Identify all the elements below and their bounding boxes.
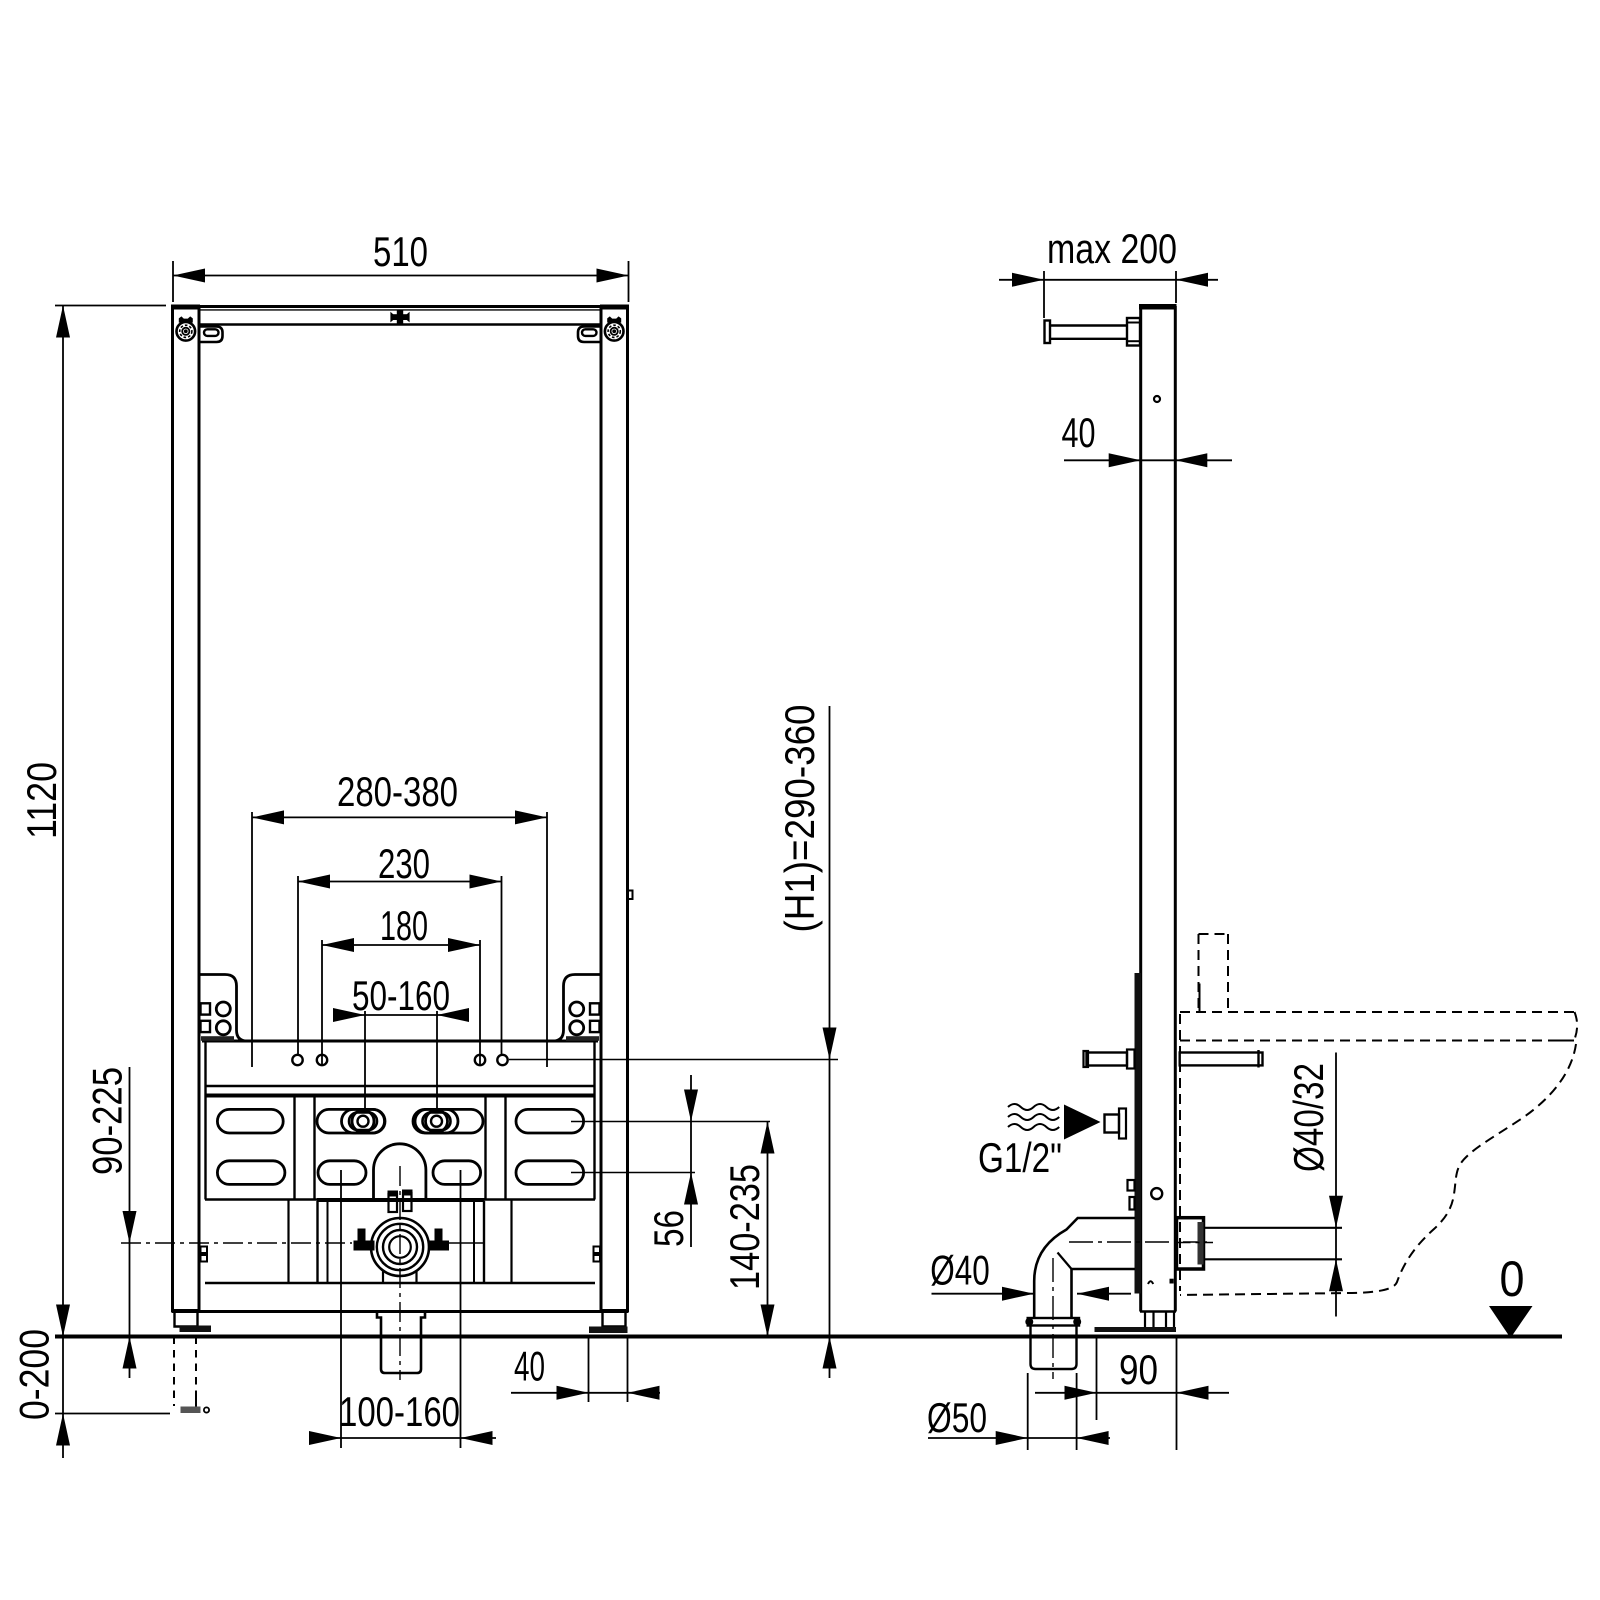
svg-text:1120: 1120 bbox=[18, 762, 65, 839]
svg-text:90: 90 bbox=[1119, 1346, 1158, 1393]
svg-text:max 200: max 200 bbox=[1047, 225, 1177, 272]
svg-text:Ø40: Ø40 bbox=[930, 1247, 990, 1294]
svg-text:140-235: 140-235 bbox=[721, 1164, 768, 1290]
svg-text:180: 180 bbox=[380, 902, 428, 949]
svg-text:(H1)=290-360: (H1)=290-360 bbox=[776, 705, 823, 933]
svg-text:100-160: 100-160 bbox=[339, 1388, 460, 1435]
svg-text:40: 40 bbox=[1062, 409, 1096, 456]
svg-text:Ø50: Ø50 bbox=[927, 1394, 987, 1441]
svg-text:230: 230 bbox=[378, 840, 430, 887]
svg-text:G1/2": G1/2" bbox=[978, 1134, 1062, 1181]
svg-text:40: 40 bbox=[514, 1343, 545, 1390]
svg-text:510: 510 bbox=[373, 228, 428, 275]
svg-text:0: 0 bbox=[1500, 1251, 1525, 1307]
svg-text:280-380: 280-380 bbox=[337, 768, 458, 815]
svg-text:90-225: 90-225 bbox=[84, 1067, 131, 1175]
svg-text:50-160: 50-160 bbox=[352, 972, 450, 1019]
svg-text:56: 56 bbox=[645, 1210, 692, 1247]
svg-text:Ø40/32: Ø40/32 bbox=[1285, 1063, 1332, 1172]
svg-text:0-200: 0-200 bbox=[11, 1329, 58, 1420]
